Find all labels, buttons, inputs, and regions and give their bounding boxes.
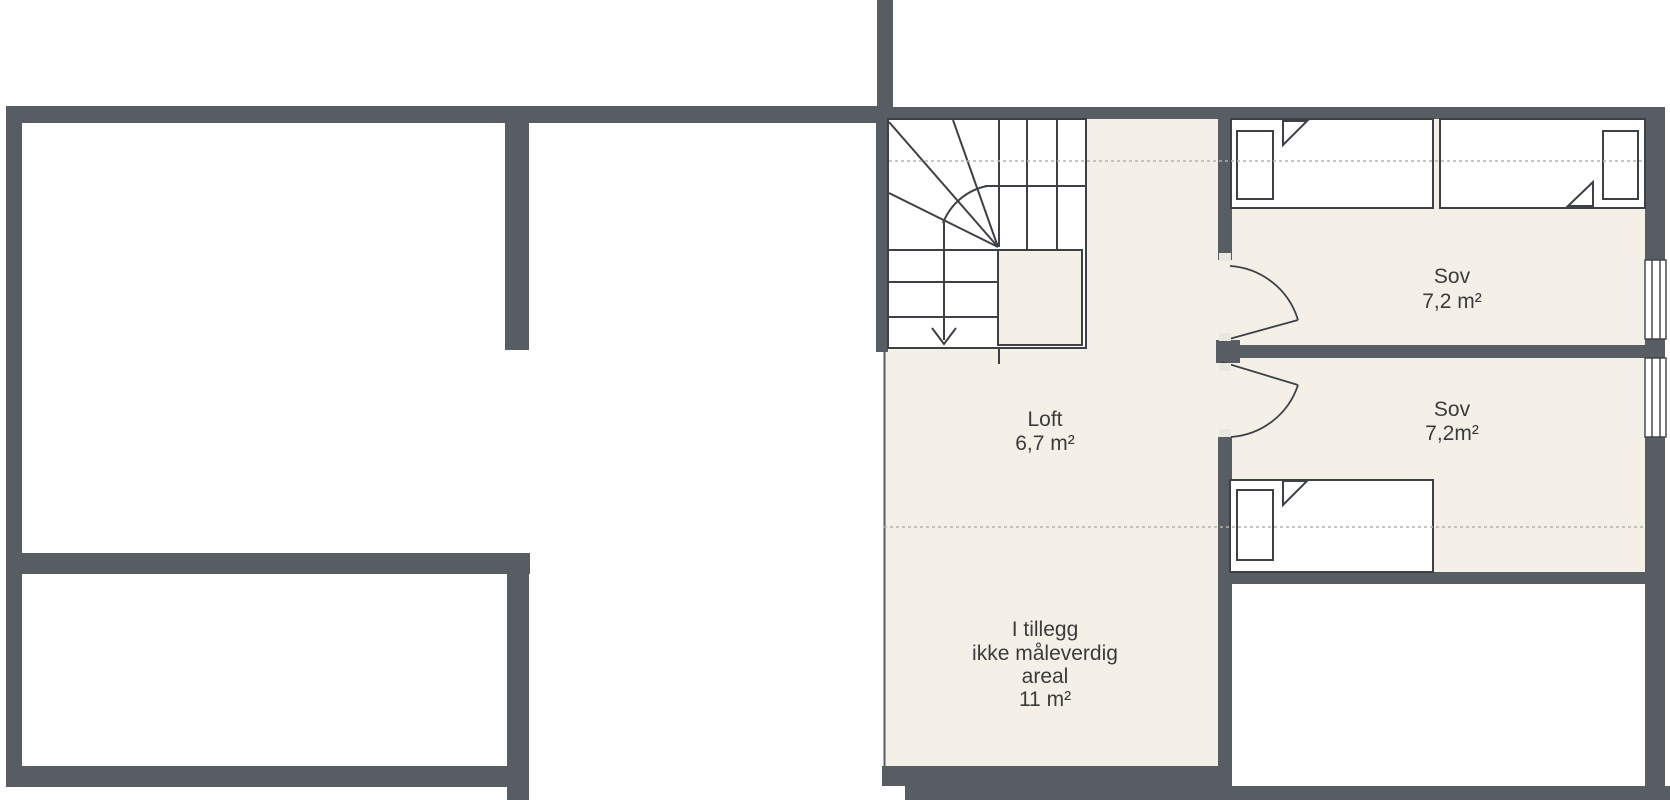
floorplan-page: Sov 7,2 m² Sov 7,2m² Loft 6,7 m² I tille…	[0, 0, 1670, 800]
wall-mid-left	[6, 553, 530, 574]
door-frame-cap-1	[1219, 253, 1231, 261]
wall-stair-left	[876, 119, 888, 352]
wall-between-bedrooms	[1232, 345, 1645, 358]
wall-bottom-band	[905, 786, 1670, 800]
window-icon-1	[1645, 260, 1666, 339]
wall-interior-upper-left	[505, 123, 529, 350]
annotation-line2: ikke måleverdig	[972, 642, 1118, 665]
floorplan-canvas: Sov 7,2 m² Sov 7,2m² Loft 6,7 m² I tille…	[0, 0, 1670, 800]
bedroom2-area: 7,2m²	[1425, 422, 1479, 445]
bed1-pillow	[1237, 131, 1273, 199]
wall-bedroom2-bottom	[1218, 572, 1665, 584]
bedroom1-area: 7,2 m²	[1422, 290, 1482, 313]
bedroom2-label: Sov	[1434, 398, 1471, 421]
wall-leftblock-bottom	[6, 766, 529, 787]
wall-left-outer	[6, 106, 22, 787]
wall-right-outer-a	[1645, 107, 1665, 260]
wall-right-outer-b	[1645, 339, 1665, 358]
loft-label: Loft	[1027, 408, 1062, 431]
wall-cream-bottom	[882, 766, 1231, 786]
annotation-line4: 11 m²	[1019, 688, 1071, 711]
annotation-line3: areal	[1022, 665, 1069, 688]
window2-frame	[1645, 358, 1666, 437]
annotation-line1: I tillegg	[1012, 618, 1079, 641]
bed-icon-2	[1440, 119, 1645, 208]
window1-frame	[1645, 260, 1666, 339]
staircase	[888, 119, 1086, 364]
wall-right-outer-c	[1645, 437, 1665, 800]
window-icon-2	[1645, 358, 1666, 437]
staircase-void-box	[998, 250, 1082, 345]
door-frame-cap-3	[1219, 363, 1231, 371]
door-frame-cap-4	[1219, 429, 1231, 437]
bed3-pillow	[1237, 490, 1273, 560]
wall-hallway-upper	[1218, 119, 1232, 260]
bedroom1-label: Sov	[1434, 265, 1471, 288]
bed-icon-1	[1231, 119, 1433, 208]
loft-area: 6,7 m²	[1015, 432, 1075, 455]
wall-top-right	[877, 107, 1665, 119]
wall-top-left	[6, 106, 877, 123]
door-frame-cap-2	[1219, 333, 1231, 341]
wall-top-stub	[877, 0, 893, 112]
bed2-pillow	[1603, 131, 1638, 199]
bed-icon-3	[1230, 480, 1433, 572]
wall-leftblock-right	[507, 553, 529, 800]
